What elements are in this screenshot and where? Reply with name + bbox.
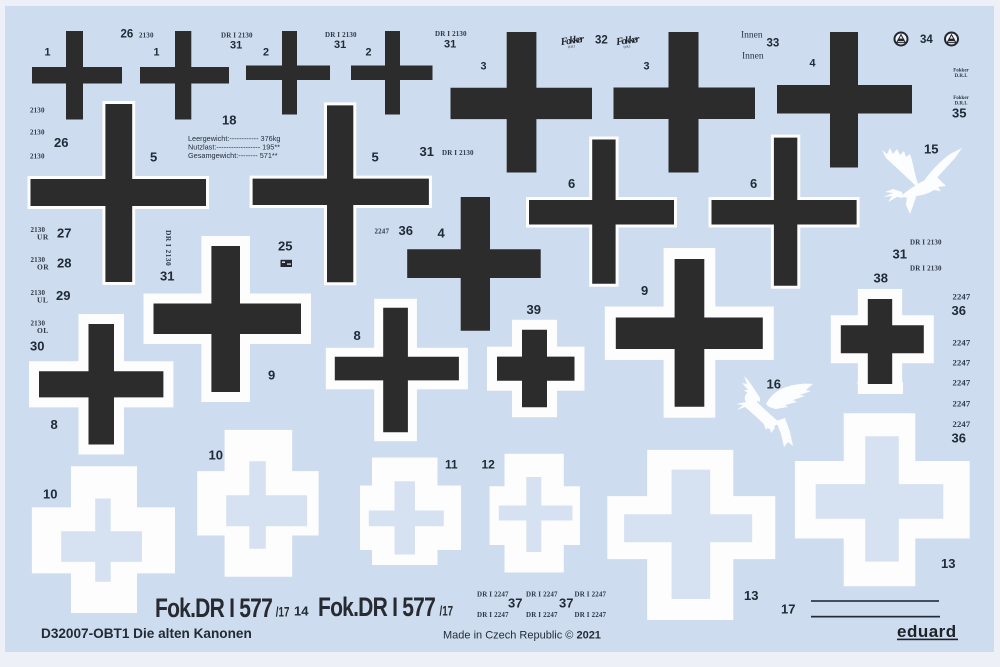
svg-text:DR I 2247: DR I 2247 — [575, 591, 607, 599]
svg-text:2: 2 — [263, 47, 269, 59]
svg-text:D.R.I.: D.R.I. — [955, 74, 969, 79]
svg-text:1: 1 — [154, 47, 160, 59]
svg-text:UR: UR — [37, 233, 49, 242]
svg-text:33: 33 — [767, 38, 780, 50]
svg-text:2247: 2247 — [953, 378, 971, 388]
svg-text:2247: 2247 — [375, 228, 390, 236]
svg-text:29: 29 — [56, 288, 70, 303]
svg-text:1: 1 — [45, 47, 51, 59]
svg-text:10: 10 — [43, 487, 57, 502]
svg-text:2247: 2247 — [953, 358, 971, 368]
svg-text:2247: 2247 — [953, 399, 971, 409]
svg-text:31: 31 — [230, 40, 242, 52]
svg-text:2247: 2247 — [953, 292, 971, 302]
svg-text:30: 30 — [30, 339, 44, 354]
svg-text:OR: OR — [37, 263, 49, 272]
svg-text:13: 13 — [744, 588, 758, 603]
svg-text:17: 17 — [781, 602, 795, 617]
svg-text:Innen: Innen — [741, 31, 763, 41]
svg-text:DR I 2247: DR I 2247 — [575, 611, 607, 619]
svg-text:26: 26 — [54, 135, 68, 150]
svg-text:Fok.DR I 577: Fok.DR I 577 — [155, 594, 272, 624]
svg-text:10: 10 — [209, 448, 223, 463]
svg-text:DR I 2130: DR I 2130 — [164, 230, 173, 266]
svg-text:2247: 2247 — [953, 419, 971, 429]
svg-text:9: 9 — [268, 368, 275, 383]
svg-text:27: 27 — [57, 226, 71, 241]
svg-text:18: 18 — [222, 113, 236, 128]
svg-text:13: 13 — [941, 556, 955, 571]
svg-text:16: 16 — [767, 377, 781, 392]
svg-text:DR I 2130: DR I 2130 — [910, 239, 942, 247]
svg-text:35: 35 — [952, 106, 966, 121]
svg-text:31: 31 — [420, 144, 434, 159]
svg-text:DR I 2130: DR I 2130 — [910, 265, 942, 273]
svg-text:37: 37 — [559, 596, 573, 611]
svg-text:31: 31 — [444, 39, 456, 51]
svg-text:36: 36 — [952, 303, 966, 318]
svg-text:DR I 2130: DR I 2130 — [435, 30, 467, 38]
svg-text:26: 26 — [121, 29, 134, 41]
svg-text:Innen: Innen — [742, 52, 764, 62]
svg-text:6: 6 — [750, 176, 757, 191]
svg-text:9: 9 — [641, 283, 648, 298]
svg-text:28: 28 — [57, 256, 71, 271]
svg-text:31: 31 — [893, 247, 907, 262]
svg-text:UL: UL — [37, 296, 48, 305]
svg-text:DR I 2247: DR I 2247 — [477, 611, 509, 619]
svg-text:2247: 2247 — [953, 338, 971, 348]
svg-text:3: 3 — [644, 61, 650, 73]
svg-text:5: 5 — [372, 150, 379, 165]
svg-text:Fokker: Fokker — [953, 69, 969, 74]
svg-text:39: 39 — [527, 302, 541, 317]
svg-text:2130: 2130 — [139, 32, 154, 40]
svg-text:Made in Czech Republic © 202: Made in Czech Republic © 2021 — [443, 630, 601, 642]
svg-text:4: 4 — [438, 226, 446, 241]
svg-text:5: 5 — [150, 150, 157, 165]
svg-text:/17: /17 — [440, 603, 454, 619]
svg-text:2130: 2130 — [30, 107, 45, 115]
svg-text:38: 38 — [874, 271, 888, 286]
svg-text:DR I 2247: DR I 2247 — [477, 591, 509, 599]
svg-text:32: 32 — [595, 34, 608, 46]
svg-text:2130: 2130 — [30, 129, 45, 137]
svg-text:DR I 2130: DR I 2130 — [442, 149, 474, 157]
svg-text:DR I 2247: DR I 2247 — [526, 591, 558, 599]
svg-text:36: 36 — [399, 223, 413, 238]
svg-text:OL: OL — [37, 326, 49, 335]
svg-text:31: 31 — [334, 39, 346, 51]
svg-text:2130: 2130 — [30, 153, 45, 161]
svg-text:Fok.DR I 577: Fok.DR I 577 — [318, 593, 435, 623]
svg-text:15: 15 — [924, 142, 938, 157]
svg-text:14: 14 — [294, 604, 309, 619]
svg-text:3: 3 — [481, 61, 487, 73]
svg-text:31: 31 — [160, 269, 174, 284]
svg-text:4: 4 — [810, 58, 816, 70]
svg-text:25: 25 — [278, 239, 292, 254]
svg-text:12: 12 — [482, 458, 496, 472]
svg-text:eduard: eduard — [897, 622, 957, 641]
svg-text:34: 34 — [920, 34, 933, 46]
svg-text:Fokker: Fokker — [953, 96, 969, 101]
svg-text:36: 36 — [952, 431, 966, 446]
svg-text:/17: /17 — [276, 604, 290, 620]
svg-text:DR I 2247: DR I 2247 — [526, 611, 558, 619]
svg-text:Gesamgewicht:-------- 571**: Gesamgewicht:-------- 571** — [188, 151, 278, 160]
svg-text:6: 6 — [568, 176, 575, 191]
svg-text:11: 11 — [445, 458, 458, 472]
svg-text:2: 2 — [366, 47, 372, 59]
svg-text:DR I 2130: DR I 2130 — [221, 32, 253, 40]
svg-text:8: 8 — [354, 328, 361, 343]
svg-text:37: 37 — [508, 596, 522, 611]
svg-text:D32007-OBT1 Die alten Kanonen: D32007-OBT1 Die alten Kanonen — [41, 626, 252, 641]
svg-text:DR I 2130: DR I 2130 — [325, 31, 357, 39]
svg-text:8: 8 — [51, 417, 58, 432]
